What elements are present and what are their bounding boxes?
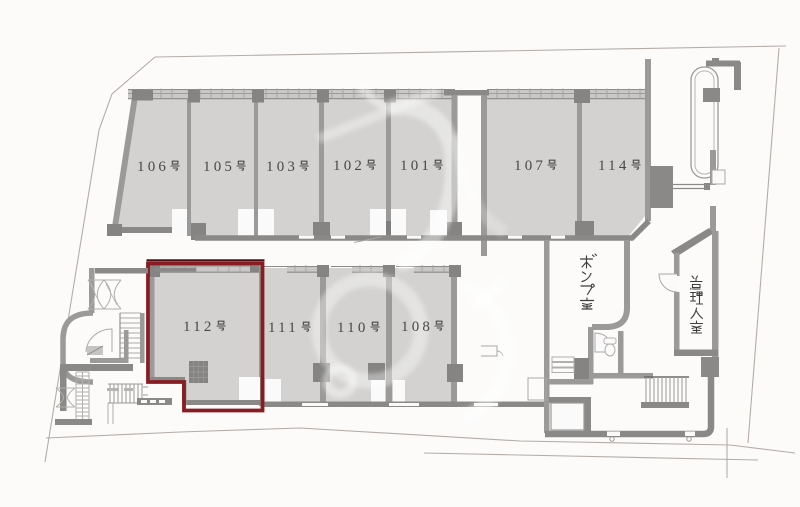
- svg-text:111: 111: [268, 320, 299, 336]
- svg-text:107: 107: [514, 158, 546, 174]
- svg-text:101: 101: [400, 158, 432, 174]
- svg-text:110: 110: [337, 320, 369, 336]
- svg-text:103: 103: [266, 159, 298, 175]
- svg-text:112: 112: [183, 319, 215, 335]
- svg-text:106: 106: [137, 159, 169, 175]
- svg-text:114: 114: [598, 158, 630, 174]
- svg-text:108: 108: [401, 319, 433, 335]
- svg-text:102: 102: [333, 158, 365, 174]
- svg-text:105: 105: [203, 159, 235, 175]
